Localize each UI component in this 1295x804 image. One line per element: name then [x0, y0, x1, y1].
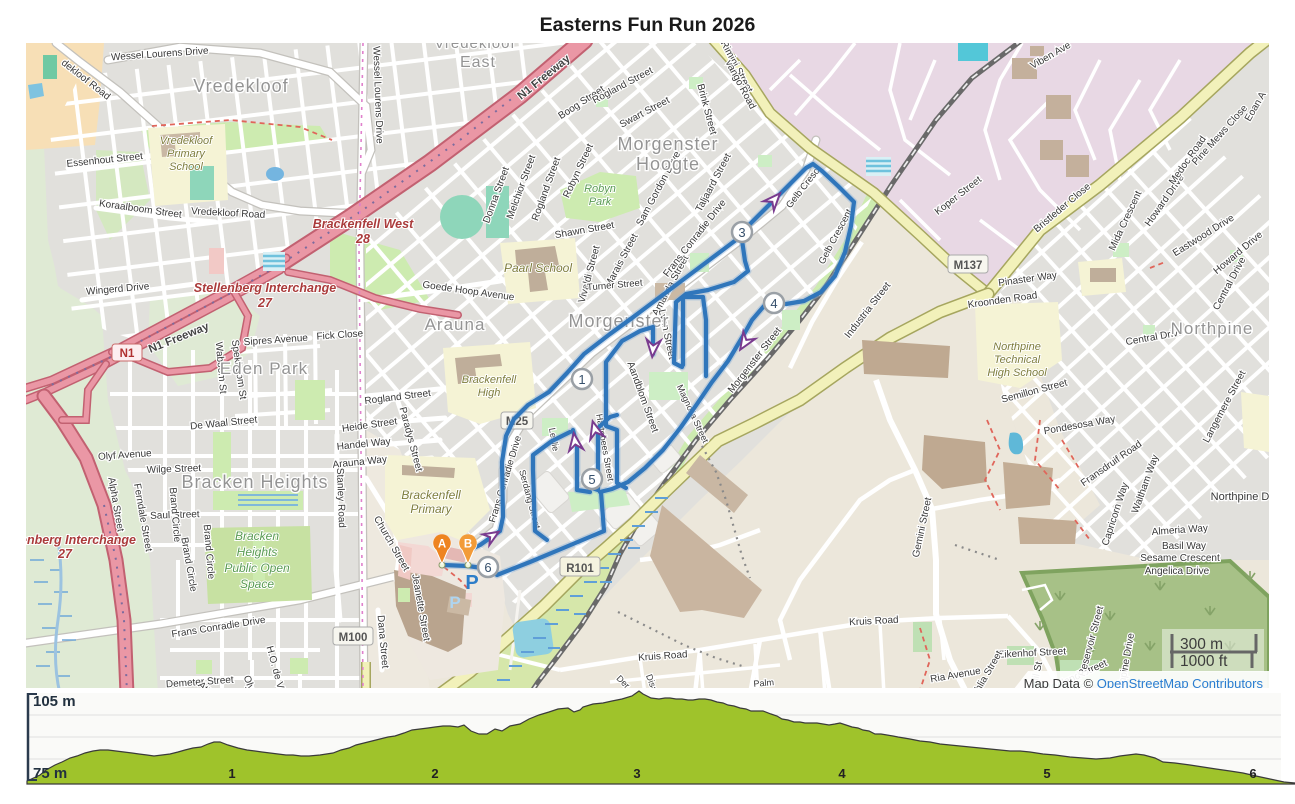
svg-text:Sesame Crescent: Sesame Crescent: [1140, 553, 1220, 564]
svg-text:B: B: [464, 539, 472, 551]
svg-text:Brackenfell: Brackenfell: [462, 374, 517, 386]
svg-text:Heights: Heights: [237, 545, 278, 559]
svg-text:6: 6: [1249, 766, 1256, 781]
svg-text:Northpine D: Northpine D: [1211, 491, 1269, 503]
svg-text:Vredekloof: Vredekloof: [434, 43, 515, 52]
svg-text:1000 ft: 1000 ft: [1180, 653, 1228, 670]
svg-text:Public Open: Public Open: [224, 561, 290, 575]
svg-text:Northpine: Northpine: [1171, 319, 1254, 338]
svg-text:N1: N1: [120, 348, 135, 360]
svg-text:Primary: Primary: [167, 148, 206, 160]
svg-text:East: East: [460, 54, 496, 71]
svg-text:4: 4: [838, 766, 846, 781]
svg-text:27: 27: [257, 296, 273, 310]
svg-text:M100: M100: [339, 632, 368, 644]
svg-text:3: 3: [738, 225, 745, 240]
svg-text:High School: High School: [987, 367, 1047, 379]
svg-text:Vredekloof: Vredekloof: [160, 135, 213, 147]
svg-text:300 m: 300 m: [1180, 636, 1223, 653]
svg-text:A: A: [438, 539, 446, 551]
svg-text:Park: Park: [589, 196, 612, 208]
svg-text:M137: M137: [954, 260, 983, 272]
svg-text:1: 1: [228, 766, 235, 781]
svg-text:School: School: [169, 161, 203, 173]
svg-text:Northpine: Northpine: [993, 341, 1041, 353]
svg-text:Stellenberg Interchange: Stellenberg Interchange: [194, 281, 336, 295]
svg-text:28: 28: [355, 232, 370, 246]
svg-text:Arauna: Arauna: [425, 315, 486, 334]
svg-text:105 m: 105 m: [33, 693, 76, 710]
svg-text:P: P: [449, 593, 460, 612]
svg-text:Angelica Drive: Angelica Drive: [1145, 566, 1210, 577]
svg-text:Morgenster: Morgenster: [617, 134, 718, 154]
svg-text:4: 4: [770, 296, 777, 311]
svg-text:Brackenfell: Brackenfell: [401, 488, 461, 502]
svg-text:R101: R101: [566, 563, 594, 575]
svg-text:Eden Park: Eden Park: [220, 359, 308, 378]
svg-text:Basil Way: Basil Way: [1162, 541, 1206, 552]
svg-text:Vredekloof: Vredekloof: [193, 76, 288, 96]
svg-text:5: 5: [1043, 766, 1050, 781]
svg-text:enberg Interchange: enberg Interchange: [26, 533, 136, 547]
svg-text:High: High: [478, 387, 501, 399]
svg-text:75 m: 75 m: [33, 765, 67, 782]
svg-text:1: 1: [578, 372, 585, 387]
svg-text:Robyn: Robyn: [584, 183, 616, 195]
svg-text:Bracken Heights: Bracken Heights: [181, 472, 328, 492]
svg-text:Primary: Primary: [410, 502, 452, 516]
svg-text:27: 27: [57, 547, 73, 561]
svg-text:6: 6: [484, 560, 491, 575]
svg-text:Stanley Road: Stanley Road: [334, 468, 347, 528]
svg-text:Paarl School: Paarl School: [504, 261, 572, 275]
svg-text:Space: Space: [240, 577, 274, 591]
svg-text:Brackenfell West: Brackenfell West: [313, 217, 414, 231]
svg-text:5: 5: [588, 472, 595, 487]
svg-text:2: 2: [431, 766, 438, 781]
svg-text:P: P: [465, 572, 478, 594]
svg-text:Hoogte: Hoogte: [636, 154, 700, 174]
svg-text:Bracken: Bracken: [235, 529, 279, 543]
svg-text:Technical: Technical: [994, 354, 1041, 366]
svg-text:3: 3: [633, 766, 640, 781]
